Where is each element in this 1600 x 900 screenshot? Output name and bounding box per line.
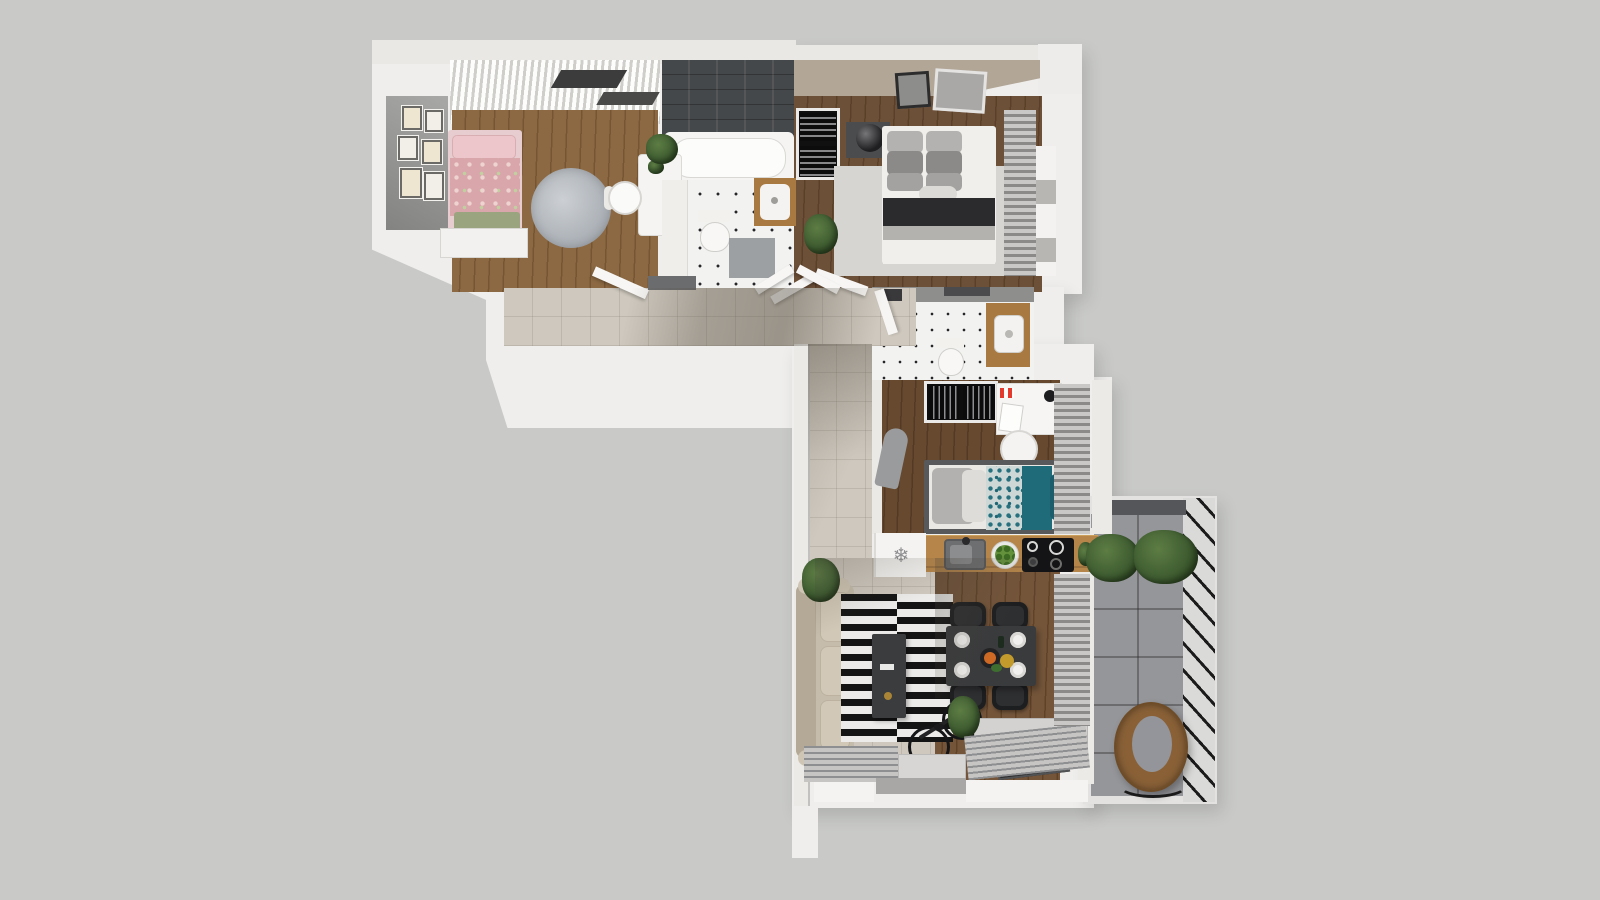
kids-teal-blanket (1022, 466, 1052, 530)
picture-frame (398, 136, 418, 160)
bedroom1-window-2 (596, 92, 660, 105)
wc-toilet-bowl (938, 348, 964, 376)
toilet-tank (698, 210, 730, 222)
wc-shower-bar (944, 287, 990, 296)
bicycle-seat (934, 724, 944, 730)
yellow-dish (1000, 654, 1014, 668)
bathroom-dark-tile-wall (662, 60, 798, 138)
burner (1028, 557, 1038, 567)
green-fruit (995, 545, 1015, 565)
picture-frame (424, 172, 444, 200)
bed-foot (883, 240, 995, 264)
picture-frame (402, 106, 422, 130)
balcony-door-blinds (1054, 574, 1090, 726)
window-sill-gray (876, 778, 966, 794)
living-plant (802, 558, 840, 602)
toilet-bowl (700, 222, 730, 252)
bedroom1-dresser (440, 228, 528, 258)
wc-toilet-tank (936, 338, 964, 348)
egg-chair-cushion (1132, 716, 1172, 772)
master-bedroom-window-frames (1034, 146, 1056, 276)
bed-pillow (887, 151, 923, 175)
hanging-clothes (800, 146, 836, 176)
picture-frame (400, 168, 422, 198)
snowflake-icon: ❄ (893, 543, 910, 567)
fridge: ❄ (874, 533, 926, 577)
outer-wall-step (1038, 44, 1082, 94)
bathroom-cabinet (662, 180, 688, 290)
master-plant (804, 214, 838, 254)
bath-mat (729, 238, 775, 278)
kids-room-right-wall (1092, 380, 1112, 534)
egg-chair-frame (1118, 772, 1188, 798)
hanging-clothes (963, 386, 993, 419)
sofa-back (796, 584, 816, 758)
bed-pillow (926, 131, 962, 153)
bedroom1-round-rug (531, 168, 611, 248)
wall-stub-entrance (792, 800, 818, 858)
desk-red-card (1000, 388, 1014, 398)
wall-art-dark (895, 71, 931, 109)
window-sill (814, 782, 874, 802)
balcony-planter (1086, 534, 1140, 582)
bed-pillow (887, 131, 923, 153)
bed-pillow (887, 173, 923, 191)
kids-window-blinds (1054, 384, 1090, 534)
plate (954, 662, 970, 678)
wc-sink-drain (1005, 330, 1013, 338)
coffee-table (872, 634, 906, 718)
blanket-fold (883, 226, 995, 240)
balcony-planter (1134, 530, 1198, 584)
picture-frame (422, 140, 442, 164)
table-lamp (856, 124, 884, 152)
coffee-table-item (884, 692, 892, 700)
burner (1027, 541, 1038, 552)
plate (1010, 632, 1026, 648)
corridor-tile-floor (808, 344, 872, 560)
salad-dish (991, 664, 1002, 672)
picture-frame (425, 110, 443, 132)
hanging-clothes (800, 113, 836, 141)
hanging-clothes (929, 386, 959, 419)
kids-pillow-white (962, 470, 986, 522)
living-plant-2 (948, 696, 980, 738)
burner (1049, 540, 1064, 555)
hall-doormat (648, 276, 696, 290)
plate (954, 632, 970, 648)
bathtub-basin (672, 138, 786, 178)
kitchen-faucet (962, 537, 970, 545)
floor-vent-left (804, 746, 898, 782)
bedroom1-chair (608, 181, 642, 215)
coffee-table-item (880, 664, 894, 670)
bedroom1-pillow (452, 135, 516, 159)
pan-food (984, 652, 996, 664)
bottle (998, 636, 1004, 648)
bedroom1-plant (646, 134, 678, 164)
wall-art-light (933, 68, 988, 114)
sink-drain (771, 197, 778, 204)
bedroom1-duvet (450, 158, 520, 216)
burner (1050, 558, 1062, 570)
bed-pillow (926, 151, 962, 175)
kitchen-sink-basin (950, 545, 972, 564)
desk-paper (998, 403, 1024, 434)
window-sill (966, 780, 1088, 802)
bedroom1-window (551, 70, 627, 88)
dining-chair (992, 682, 1028, 710)
hallway-tile-floor (504, 288, 916, 346)
floor-plan-render: ❄ (0, 0, 1600, 900)
master-window-blinds (1004, 110, 1036, 276)
